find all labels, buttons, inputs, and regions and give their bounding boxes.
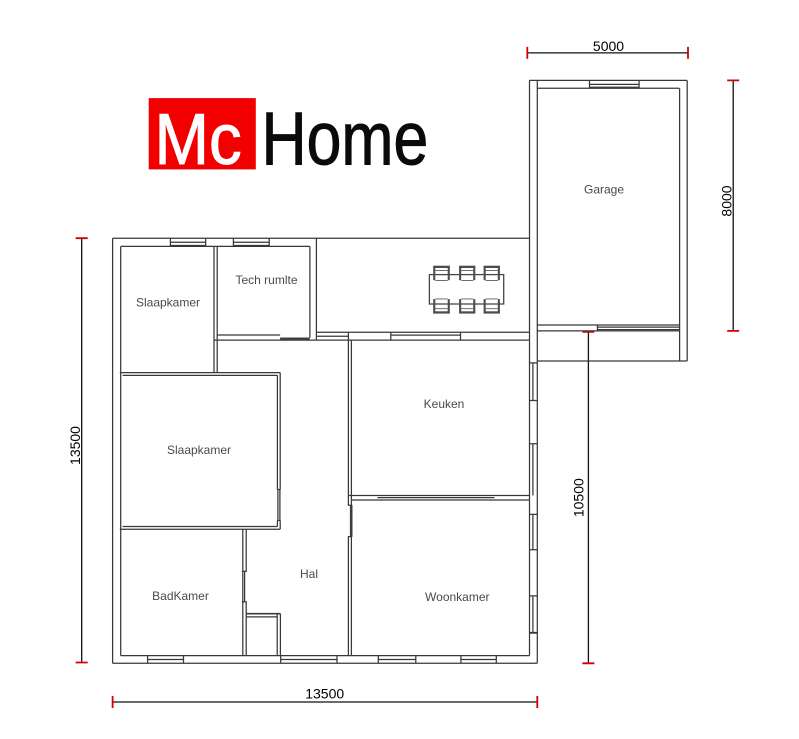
svg-text:13500: 13500 (67, 426, 83, 465)
svg-text:Tech rumlte: Tech rumlte (235, 273, 297, 287)
svg-text:Hal: Hal (300, 567, 318, 581)
svg-text:Woonkamer: Woonkamer (425, 590, 489, 604)
svg-text:BadKamer: BadKamer (152, 589, 209, 603)
svg-text:Keuken: Keuken (424, 397, 465, 411)
svg-text:10500: 10500 (571, 478, 587, 517)
svg-text:Slaapkamer: Slaapkamer (136, 296, 200, 310)
svg-text:8000: 8000 (719, 185, 735, 216)
svg-text:Mc: Mc (155, 98, 242, 180)
svg-text:13500: 13500 (305, 686, 344, 702)
svg-text:Garage: Garage (584, 183, 624, 197)
svg-text:5000: 5000 (593, 38, 624, 54)
svg-text:Slaapkamer: Slaapkamer (167, 443, 231, 457)
svg-text:Home: Home (262, 96, 429, 181)
